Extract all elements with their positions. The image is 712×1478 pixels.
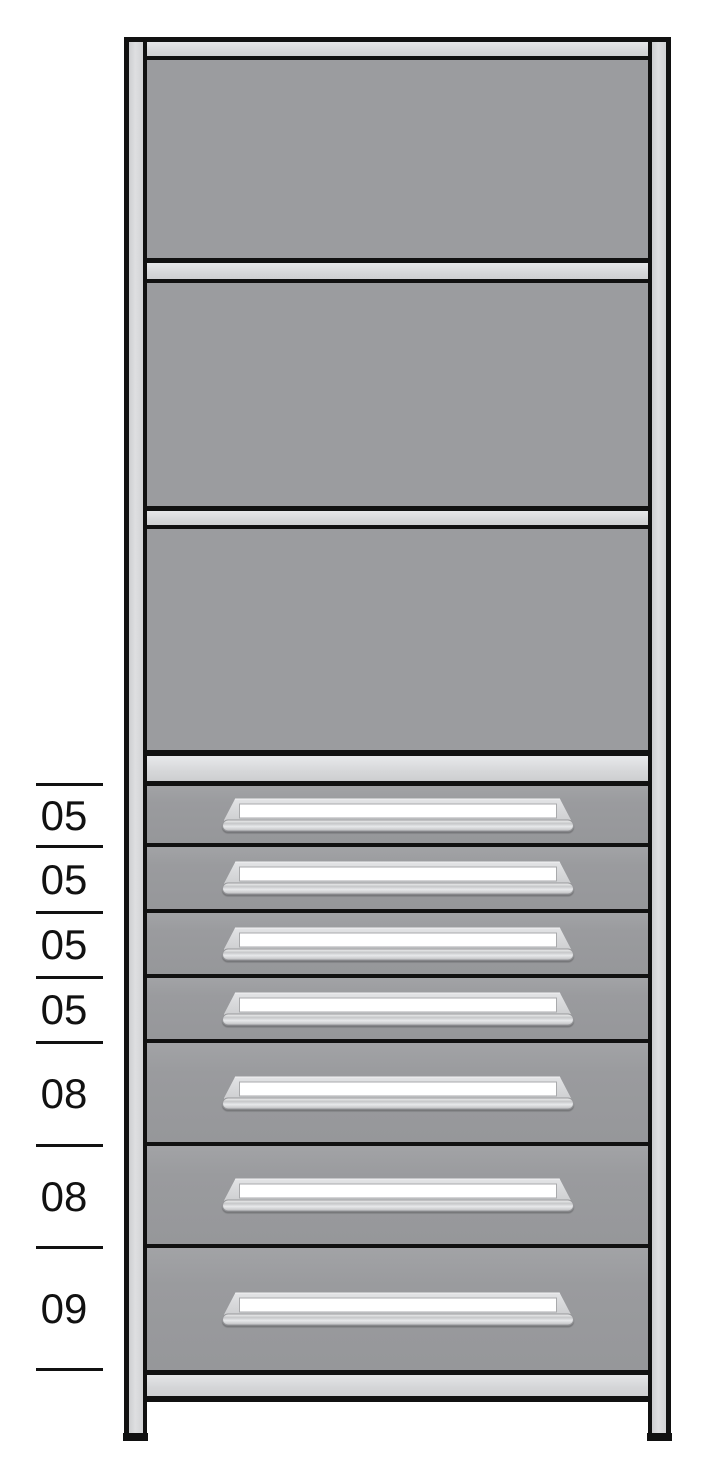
open-shelf-section-2 <box>147 283 648 506</box>
handle-label-window <box>239 1081 557 1096</box>
handle-label-window <box>239 932 557 947</box>
dimension-tick <box>36 845 103 848</box>
drawer-size-label-3: 05 <box>24 924 104 966</box>
drawer-size-label-2: 05 <box>24 859 104 901</box>
drawer-3-handle <box>222 927 574 960</box>
drawer-5 <box>147 1043 648 1146</box>
unit-stack <box>147 37 648 1402</box>
drawer-3 <box>147 913 648 978</box>
drawer-2-handle <box>222 862 574 895</box>
handle-label-window <box>239 867 557 882</box>
dimension-tick <box>36 911 103 914</box>
drawer-size-label-7: 09 <box>24 1288 104 1330</box>
drawer-6-handle <box>222 1179 574 1212</box>
open-shelf-section-3 <box>147 529 648 750</box>
handle-label-window <box>239 1298 557 1313</box>
drawer-size-label-6: 08 <box>24 1176 104 1218</box>
handle-lip <box>222 819 574 831</box>
drawer-7 <box>147 1248 648 1370</box>
dimension-tick <box>36 1144 103 1147</box>
handle-lip <box>222 948 574 960</box>
drawer-top-shelf <box>147 750 648 786</box>
base-rail <box>147 1370 648 1402</box>
handle-lip <box>222 1200 574 1212</box>
handle-label-window <box>239 803 557 818</box>
handle-label-window <box>239 997 557 1012</box>
open-shelf-section-1 <box>147 60 648 258</box>
handle-lip <box>222 1314 574 1326</box>
drawer-4 <box>147 978 648 1043</box>
drawer-6 <box>147 1146 648 1248</box>
drawer-7-handle <box>222 1293 574 1326</box>
handle-label-window <box>239 1184 557 1199</box>
drawer-size-label-5: 08 <box>24 1073 104 1115</box>
drawer-1 <box>147 786 648 847</box>
shelving-unit-diagram: 05 05 05 05 08 08 09 <box>0 0 712 1478</box>
left-foot <box>123 1433 148 1441</box>
left-post <box>124 37 147 1440</box>
handle-lip <box>222 1097 574 1109</box>
shelf-divider-1 <box>147 258 648 283</box>
top-rail <box>147 37 648 60</box>
handle-lip <box>222 1013 574 1025</box>
dimension-tick <box>36 1246 103 1249</box>
drawer-size-label-1: 05 <box>24 795 104 837</box>
handle-lip <box>222 883 574 895</box>
drawer-size-label-4: 05 <box>24 989 104 1031</box>
drawer-4-handle <box>222 992 574 1025</box>
right-post <box>648 37 671 1440</box>
dimension-tick <box>36 976 103 979</box>
shelving-unit <box>124 37 671 1440</box>
dimension-tick <box>36 1368 103 1371</box>
right-foot <box>647 1433 672 1441</box>
shelf-divider-2 <box>147 506 648 529</box>
drawer-5-handle <box>222 1076 574 1109</box>
drawer-2 <box>147 847 648 913</box>
drawer-1-handle <box>222 798 574 831</box>
dimension-tick <box>36 783 103 786</box>
dimension-tick <box>36 1041 103 1044</box>
